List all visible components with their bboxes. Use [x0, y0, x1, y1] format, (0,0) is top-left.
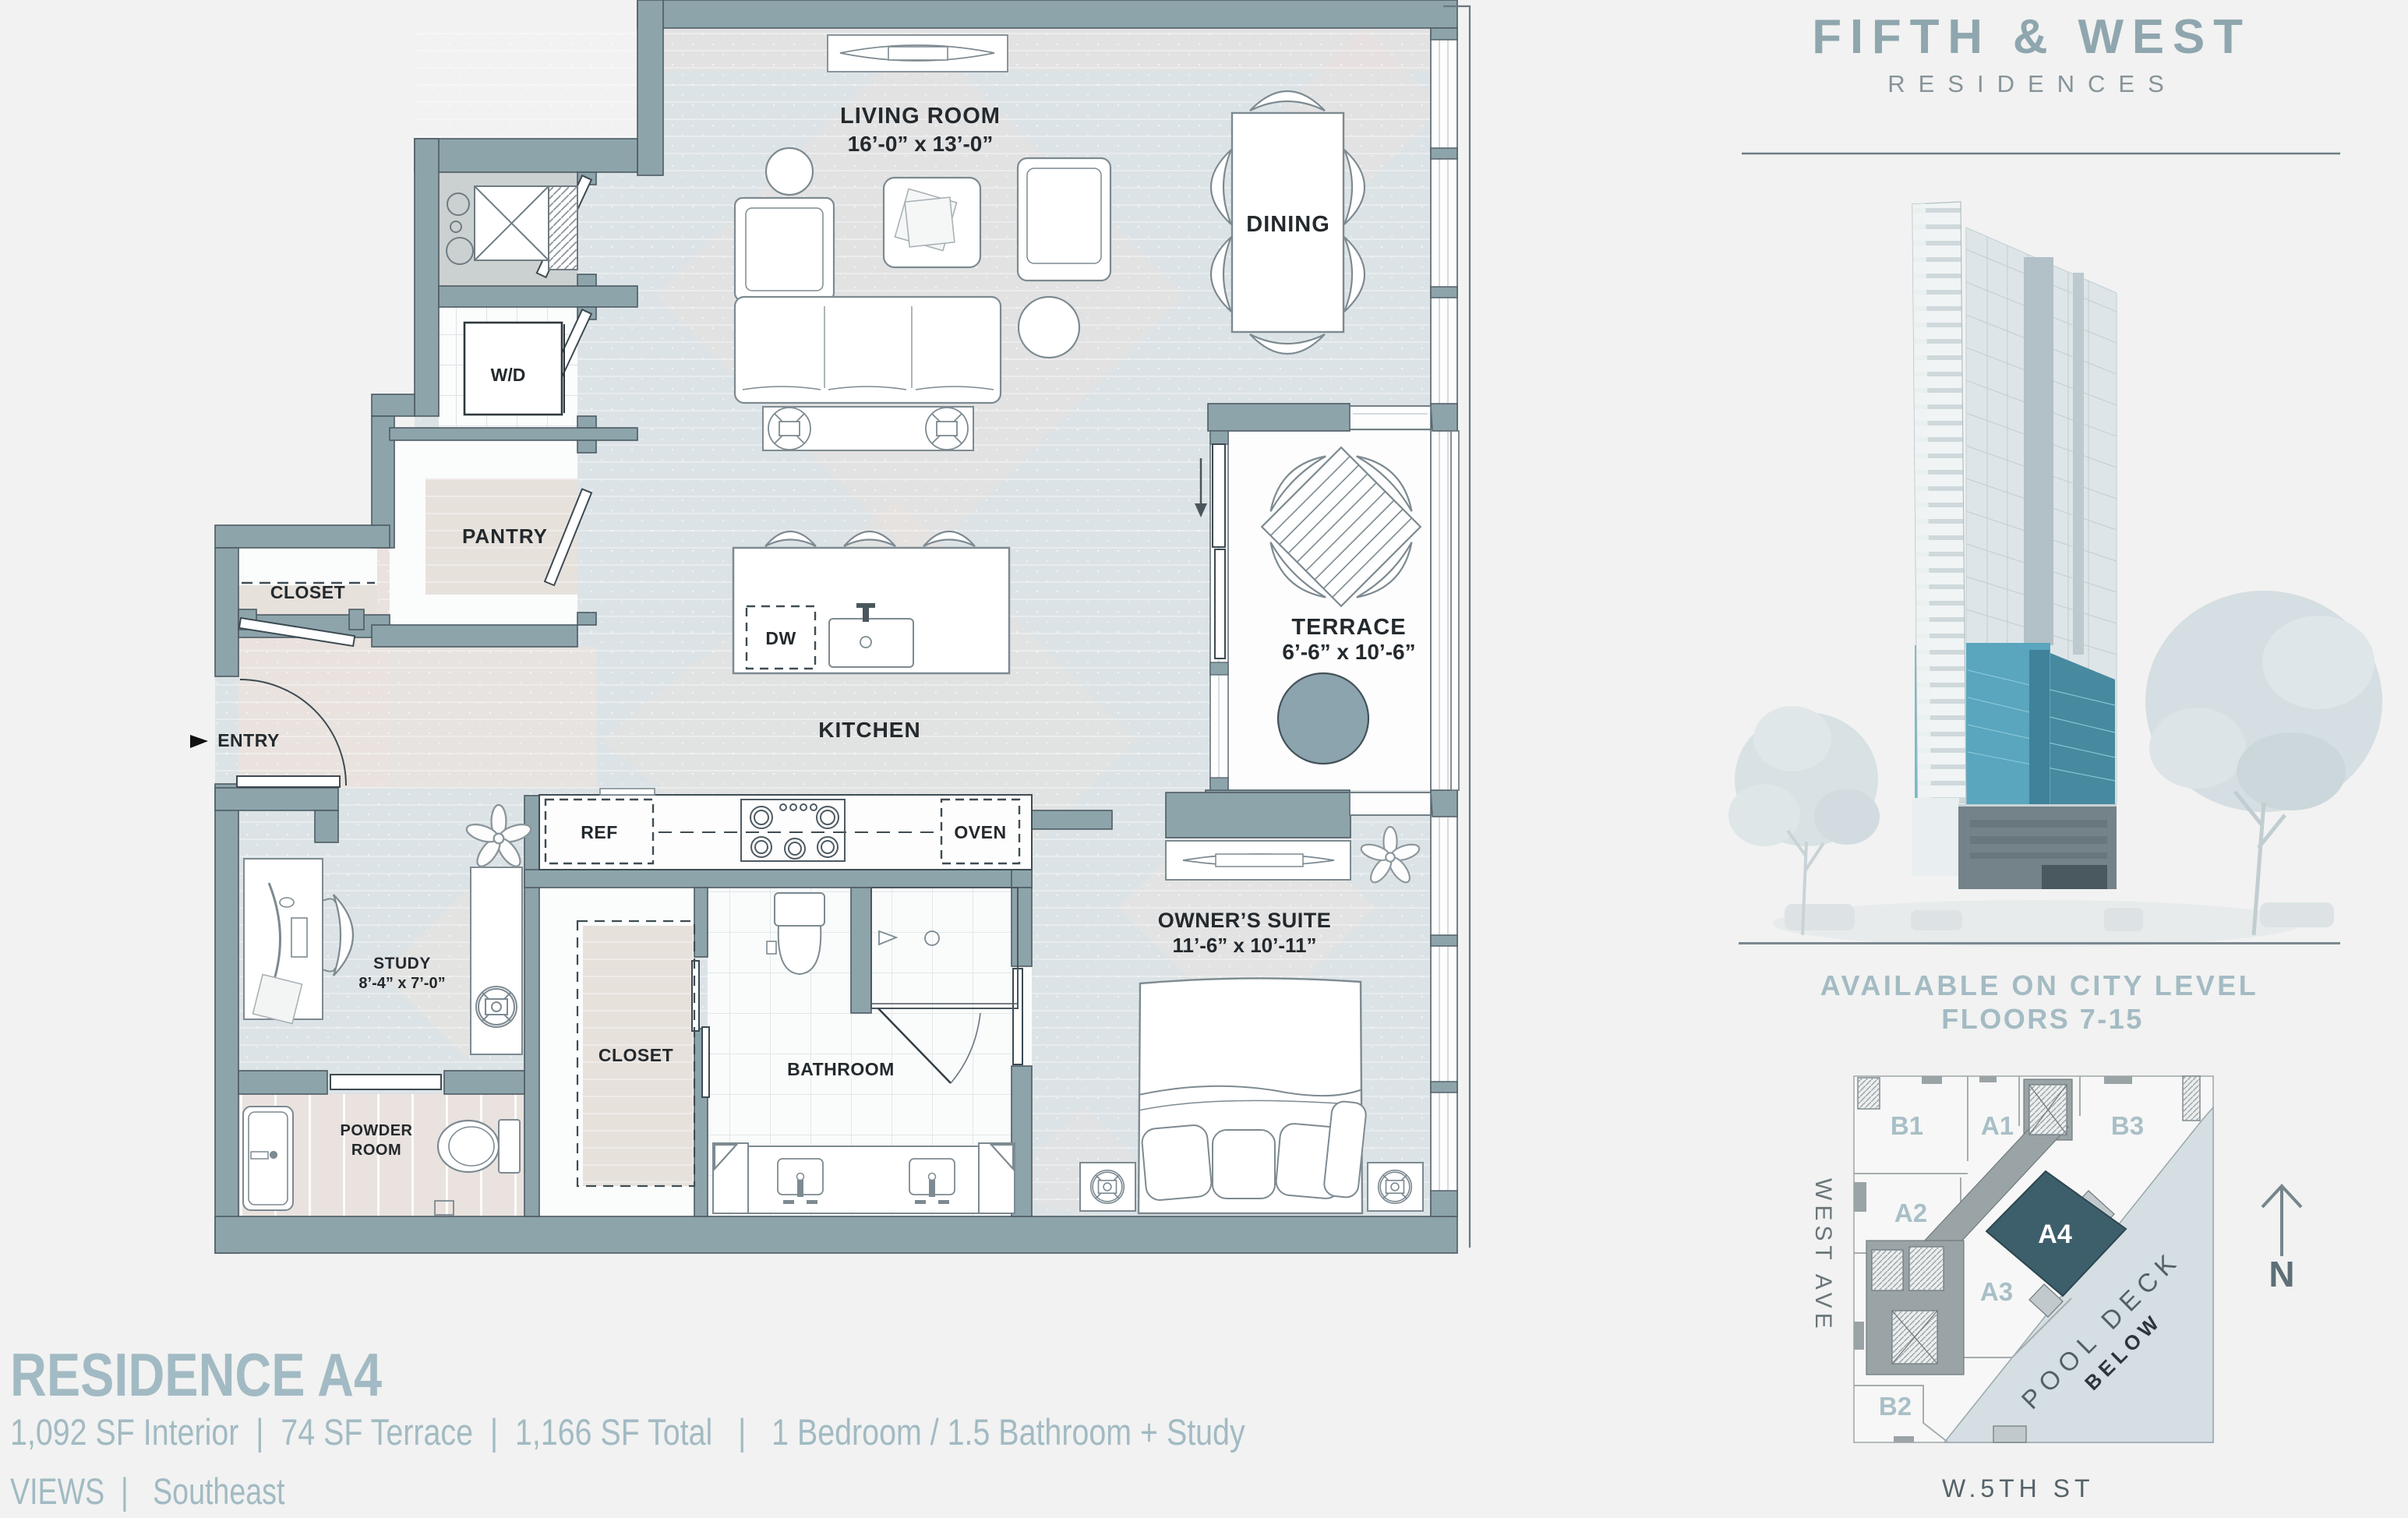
svg-text:FIFTH & WEST: FIFTH & WEST [1812, 10, 2251, 64]
svg-text:1,092 SF Interior | 74 SF Te: 1,092 SF Interior | 74 SF Terrace | 1,16… [10, 1413, 1245, 1453]
svg-text:A3: A3 [1980, 1277, 2013, 1306]
svg-text:STUDY: STUDY [373, 955, 431, 973]
svg-text:A1: A1 [1981, 1111, 2014, 1140]
svg-text:A2: A2 [1894, 1199, 1927, 1227]
svg-text:N: N [2269, 1254, 2294, 1294]
svg-text:ENTRY: ENTRY [217, 730, 280, 750]
svg-text:FLOORS 7-15: FLOORS 7-15 [1941, 1003, 2144, 1035]
svg-text:W/D: W/D [491, 365, 526, 385]
svg-text:6’-6” x 10’-6”: 6’-6” x 10’-6” [1282, 640, 1415, 664]
svg-text:CLOSET: CLOSET [598, 1045, 673, 1065]
svg-text:DW: DW [765, 628, 796, 648]
svg-text:WEST AVE: WEST AVE [1810, 1178, 1836, 1333]
svg-text:B2: B2 [1879, 1392, 1912, 1421]
svg-text:W.5TH ST: W.5TH ST [1942, 1474, 2095, 1502]
svg-text:TERRACE: TERRACE [1291, 615, 1406, 640]
svg-text:CLOSET: CLOSET [270, 582, 345, 602]
svg-text:AVAILABLE ON CITY LEVEL: AVAILABLE ON CITY LEVEL [1820, 969, 2259, 1001]
svg-text:REF: REF [581, 822, 618, 842]
svg-text:PANTRY: PANTRY [462, 524, 548, 548]
svg-text:LIVING ROOM: LIVING ROOM [840, 104, 1001, 129]
svg-text:BATHROOM: BATHROOM [787, 1059, 895, 1079]
svg-text:RESIDENCE A4: RESIDENCE A4 [10, 1341, 382, 1409]
svg-text:KITCHEN: KITCHEN [818, 718, 920, 742]
svg-text:B1: B1 [1891, 1111, 1923, 1140]
svg-text:A4: A4 [2038, 1220, 2072, 1249]
svg-text:ROOM: ROOM [351, 1142, 401, 1159]
svg-text:OVEN: OVEN [954, 822, 1006, 842]
svg-text:8’-4” x 7’-0”: 8’-4” x 7’-0” [358, 975, 445, 992]
svg-text:POWDER: POWDER [341, 1122, 413, 1139]
svg-text:VIEWS | Southeast: VIEWS | Southeast [10, 1471, 285, 1513]
svg-text:16’-0” x 13’-0”: 16’-0” x 13’-0” [848, 132, 994, 156]
svg-text:11’-6” x 10’-11”: 11’-6” x 10’-11” [1172, 934, 1316, 957]
svg-text:RESIDENCES: RESIDENCES [1887, 70, 2177, 97]
svg-text:B3: B3 [2111, 1111, 2144, 1140]
svg-text:DINING: DINING [1246, 212, 1330, 237]
svg-text:OWNER’S SUITE: OWNER’S SUITE [1158, 909, 1332, 932]
